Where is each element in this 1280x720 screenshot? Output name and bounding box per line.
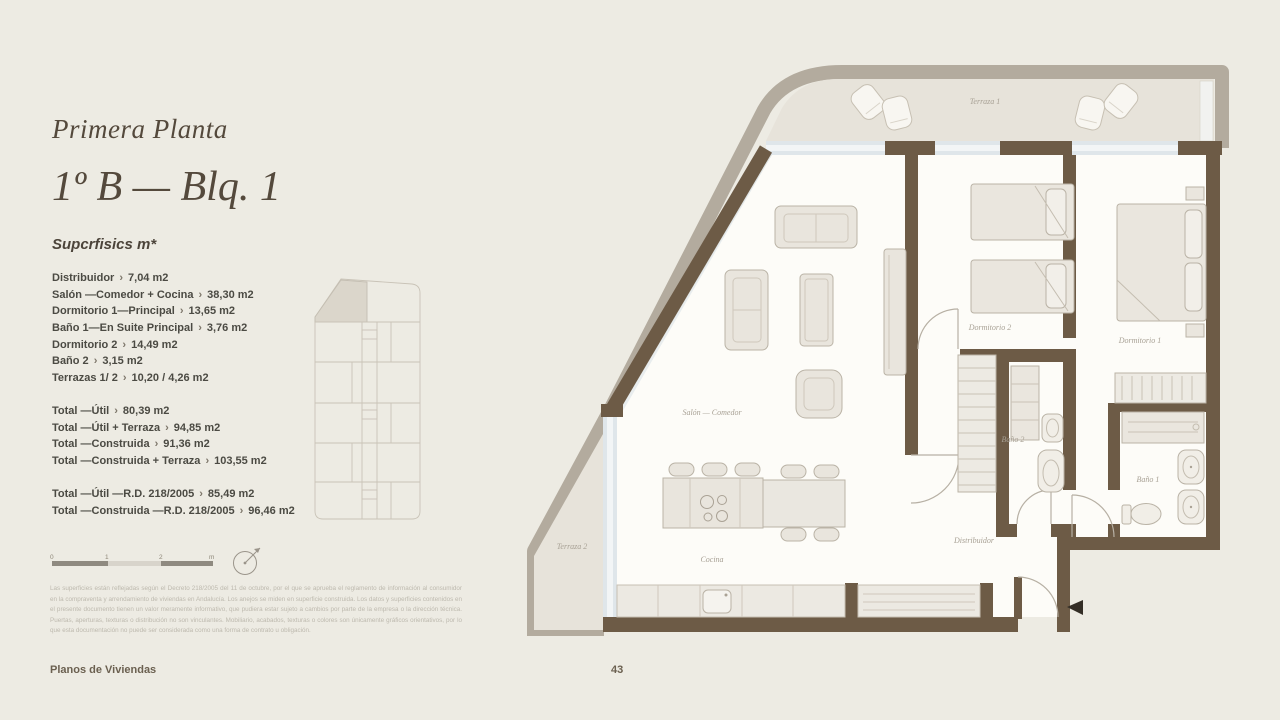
area-label: Dormitorio 1—Principal <box>52 305 175 317</box>
chevron-separator: › <box>198 322 202 334</box>
chevron-separator: › <box>240 505 244 517</box>
total-value: 80,39 m2 <box>123 405 169 417</box>
total-label: Total —Construida + Terraza <box>52 455 200 467</box>
chevron-separator: › <box>123 372 127 384</box>
kitchen-sink-icon <box>703 590 731 613</box>
area-label: Salón —Comedor + Cocina <box>52 289 194 301</box>
surfaces-subtitle: Supcrfisics m* <box>52 236 156 253</box>
area-value: 13,65 m2 <box>189 305 235 317</box>
total-value: 85,49 m2 <box>208 488 254 500</box>
room-label-cocina: Cocina <box>700 555 723 564</box>
area-value: 7,04 m2 <box>128 272 168 284</box>
total-value: 96,46 m2 <box>248 505 294 517</box>
area-value: 14,49 m2 <box>131 339 177 351</box>
total-label: Total —Construida —R.D. 218/2005 <box>52 505 235 517</box>
chevron-separator: › <box>94 355 98 367</box>
total-label: Total —Construida <box>52 438 150 450</box>
floor-plan: Terraza 1 Dormitorio 2 Dormitorio 1 Saló… <box>520 43 1230 643</box>
wardrobe-bedroom-1 <box>1115 373 1206 403</box>
compass-icon <box>234 548 261 575</box>
total-value: 103,55 m2 <box>214 455 267 467</box>
area-value: 3,76 m2 <box>207 322 247 334</box>
area-label: Baño 2 <box>52 355 89 367</box>
area-label: Distribuidor <box>52 272 114 284</box>
area-label: Baño 1—En Suite Principal <box>52 322 193 334</box>
room-label-bano-1: Baño 1 <box>1137 475 1160 484</box>
brochure-page: Primera Planta 1º B — Blq. 1 Supcrfisics… <box>0 0 1280 720</box>
terrace-1 <box>766 79 1214 141</box>
chevron-separator: › <box>155 438 159 450</box>
hallway-wardrobe <box>958 355 996 492</box>
sink-icon <box>1042 414 1063 442</box>
area-value: 10,20 / 4,26 m2 <box>132 372 209 384</box>
toilet-icon <box>1122 504 1161 525</box>
room-label-salon-comedor: Salón — Comedor <box>682 408 742 417</box>
shower-icon <box>1122 412 1204 443</box>
scale-label: 0 <box>50 554 54 561</box>
area-value: 38,30 m2 <box>207 289 253 301</box>
total-label: Total —Útil <box>52 405 109 417</box>
total-label: Total —Útil + Terraza <box>52 422 160 434</box>
scale-label: 1 <box>105 554 109 561</box>
chevron-separator: › <box>205 455 209 467</box>
room-label-dormitorio-2: Dormitorio 2 <box>968 323 1011 332</box>
page-number: 43 <box>611 664 623 676</box>
room-label-terraza-1: Terraza 1 <box>970 97 1001 106</box>
scale-label: m <box>209 554 214 561</box>
total-value: 91,36 m2 <box>163 438 209 450</box>
area-label: Terrazas 1/ 2 <box>52 372 118 384</box>
chevron-separator: › <box>122 339 126 351</box>
room-label-distribuidor: Distribuidor <box>953 536 995 545</box>
chevron-separator: › <box>165 422 169 434</box>
page-title: Primera Planta <box>52 114 228 145</box>
scale-label: 2 <box>159 554 163 561</box>
total-value: 94,85 m2 <box>174 422 220 434</box>
unit-title: 1º B — Blq. 1 <box>52 163 281 211</box>
chevron-separator: › <box>199 289 203 301</box>
room-label-terraza-2: Terraza 2 <box>557 542 588 551</box>
footer-title: Planos de Viviendas <box>50 664 156 676</box>
total-label: Total —Útil —R.D. 218/2005 <box>52 488 194 500</box>
chevron-separator: › <box>180 305 184 317</box>
key-plan <box>300 266 435 532</box>
legal-disclaimer: Las superficies están reflejadas según e… <box>50 584 462 637</box>
room-label-bano-2: Baño 2 <box>1002 435 1025 444</box>
area-value: 3,15 m2 <box>102 355 142 367</box>
room-label-dormitorio-1: Dormitorio 1 <box>1118 336 1161 345</box>
chevron-separator: › <box>199 488 203 500</box>
area-label: Dormitorio 2 <box>52 339 117 351</box>
chevron-separator: › <box>114 405 118 417</box>
scale-bar: 0 1 2 m <box>40 546 275 582</box>
chevron-separator: › <box>119 272 123 284</box>
key-plan-highlighted-unit <box>315 280 367 322</box>
